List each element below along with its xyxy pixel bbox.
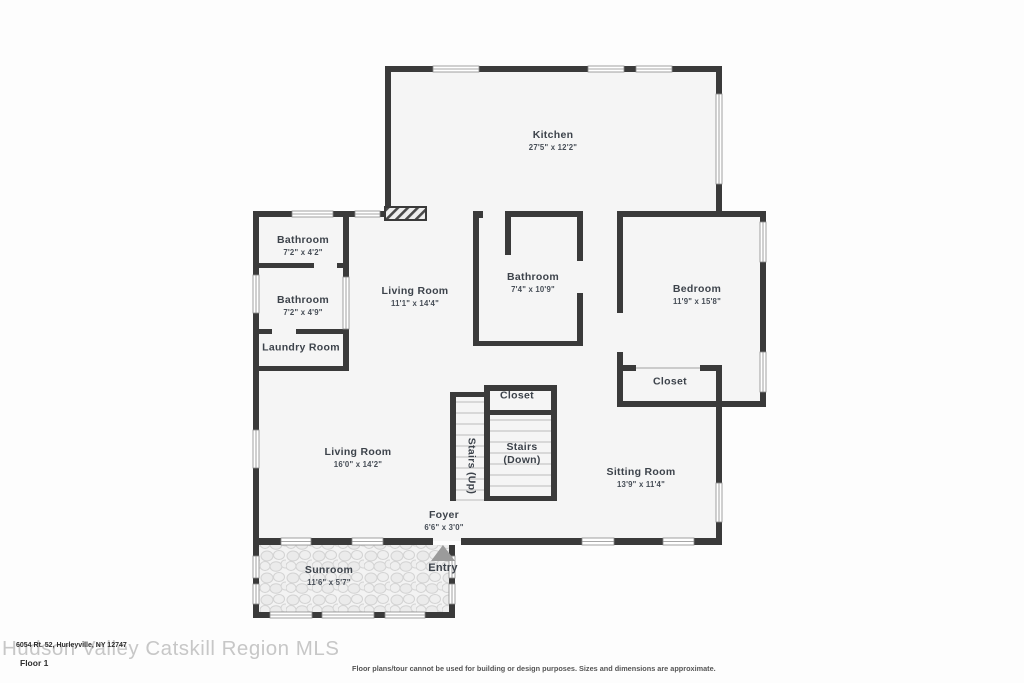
room-label-living-upper: Living Room 11'1" x 14'4" — [382, 285, 449, 309]
entry-label: Entry — [428, 562, 458, 576]
room-label-stairs-down: Stairs (Down) — [503, 441, 540, 467]
mls-watermark: Hudson Valley Catskill Region MLS — [2, 637, 339, 661]
floor-plan-page: Kitchen 27'5" x 12'2" Bathroom 7'2" x 4'… — [0, 0, 1024, 683]
sunroom-tile-floor — [258, 545, 450, 613]
room-label-sitting-room: Sitting Room 13'9" x 11'4" — [607, 466, 676, 490]
room-label-laundry: Laundry Room — [262, 341, 340, 354]
disclaimer-text: Floor plans/tour cannot be used for buil… — [352, 664, 716, 673]
room-label-bedroom-closet: Closet — [653, 375, 687, 388]
room-label-sunroom: Sunroom 11'6" x 5'7" — [305, 564, 353, 588]
room-label-bathroom-main: Bathroom 7'4" x 10'9" — [507, 271, 559, 295]
room-label-living-lower: Living Room 16'0" x 14'2" — [325, 446, 392, 470]
floorplan-graphics — [0, 0, 1024, 683]
room-label-kitchen: Kitchen 27'5" x 12'2" — [529, 129, 577, 153]
room-label-foyer: Foyer 6'6" x 3'0" — [424, 509, 463, 533]
floor-label: Floor 1 — [20, 658, 48, 668]
room-label-stairs-closet: Closet — [500, 389, 534, 402]
room-label-bathroom-top: Bathroom 7'2" x 4'2" — [277, 234, 329, 258]
listing-address: 6054 Rt. 52, Hurleyville, NY 12747 — [16, 642, 127, 649]
room-label-stairs-up: Stairs (Up) — [464, 438, 477, 494]
room-label-bathroom-mid: Bathroom 7'2" x 4'9" — [277, 294, 329, 318]
room-label-bedroom: Bedroom 11'9" x 15'8" — [673, 283, 721, 307]
hatched-step — [385, 207, 426, 220]
